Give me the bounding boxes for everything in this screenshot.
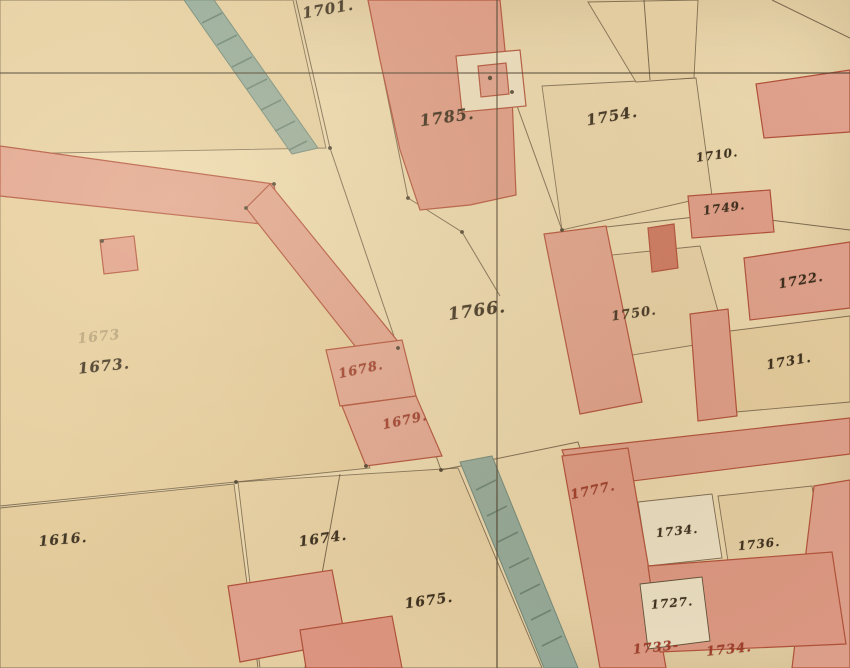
cadastral-map-canvas[interactable]: 1701.1785.1754.1710.1749.1722.1766.1750.… bbox=[0, 0, 850, 668]
paper-grain-overlay bbox=[0, 0, 850, 668]
map-drawing bbox=[0, 0, 850, 668]
